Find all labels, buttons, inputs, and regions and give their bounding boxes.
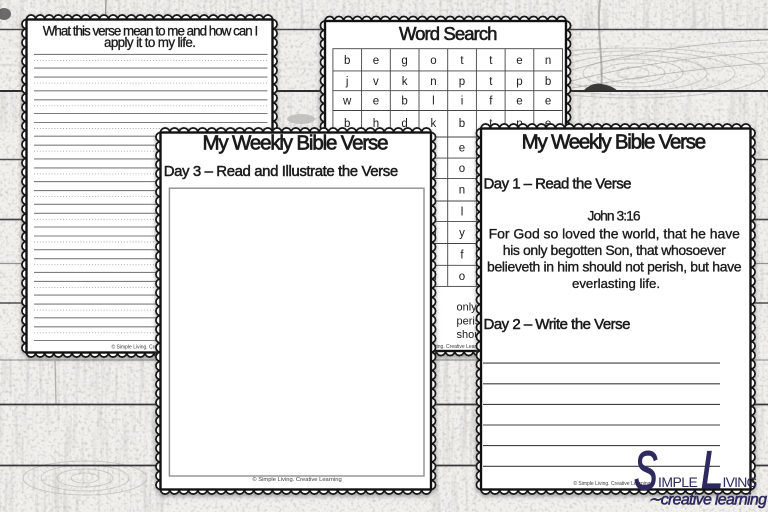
svg-text:IVING: IVING (723, 474, 757, 490)
svg-text:l: l (461, 206, 464, 218)
svg-text:believeth in him should not pe: believeth in him should not perish, but … (487, 259, 742, 275)
svg-text:b: b (545, 76, 551, 88)
svg-text:g: g (401, 55, 407, 67)
svg-text:My Weekly Bible Verse: My Weekly Bible Verse (522, 131, 707, 154)
svg-text:e: e (545, 96, 551, 108)
svg-text:My Weekly Bible Verse: My Weekly Bible Verse (203, 131, 389, 154)
svg-text:w: w (342, 96, 352, 108)
svg-text:j: j (345, 76, 349, 88)
svg-text:i: i (461, 96, 464, 108)
svg-text:k: k (431, 118, 437, 130)
svg-text:o: o (459, 163, 465, 175)
svg-text:k: k (402, 76, 408, 88)
svg-text:y: y (459, 228, 465, 240)
svg-text:o: o (459, 271, 465, 283)
svg-text:Day 3 – Read and Illustrate th: Day 3 – Read and Illustrate the Verse (164, 163, 399, 180)
svg-text:L: L (701, 440, 723, 499)
svg-text:only: only (457, 302, 478, 314)
svg-text:John 3:16: John 3:16 (588, 209, 641, 224)
svg-text:b: b (344, 55, 350, 67)
svg-text:n: n (430, 76, 436, 88)
svg-text:apply it to my life.: apply it to my life. (104, 35, 196, 50)
svg-text:l: l (432, 96, 435, 108)
svg-text:Day 2 – Write the Verse: Day 2 – Write the Verse (484, 316, 631, 333)
svg-text:e: e (373, 96, 379, 108)
svg-text:o: o (430, 55, 436, 67)
svg-text:n: n (459, 185, 465, 197)
svg-text:b: b (401, 96, 407, 108)
svg-text:e: e (459, 143, 465, 155)
svg-text:Word Search: Word Search (399, 23, 498, 44)
svg-text:e: e (516, 96, 522, 108)
svg-text:e: e (373, 55, 379, 67)
svg-text:p: p (459, 76, 465, 88)
svg-text:n: n (545, 55, 551, 67)
svg-text:his only begotten Son, that wh: his only begotten Son, that whosoever (503, 242, 726, 258)
svg-text:∼creative learning: ∼creative learning (648, 492, 767, 509)
svg-text:Day 1 – Read the Verse: Day 1 – Read the Verse (484, 176, 632, 193)
svg-text:e: e (516, 55, 522, 67)
svg-text:v: v (373, 76, 379, 88)
svg-text:© Simple Living. Creative Lear: © Simple Living. Creative Learning (252, 476, 341, 483)
svg-text:b: b (459, 118, 465, 130)
svg-text:IMPLE: IMPLE (658, 474, 697, 490)
svg-text:For God so loved the world, th: For God so loved the world, that he have (489, 226, 741, 242)
svg-text:everlasting life.: everlasting life. (572, 276, 660, 291)
svg-text:p: p (516, 76, 522, 88)
